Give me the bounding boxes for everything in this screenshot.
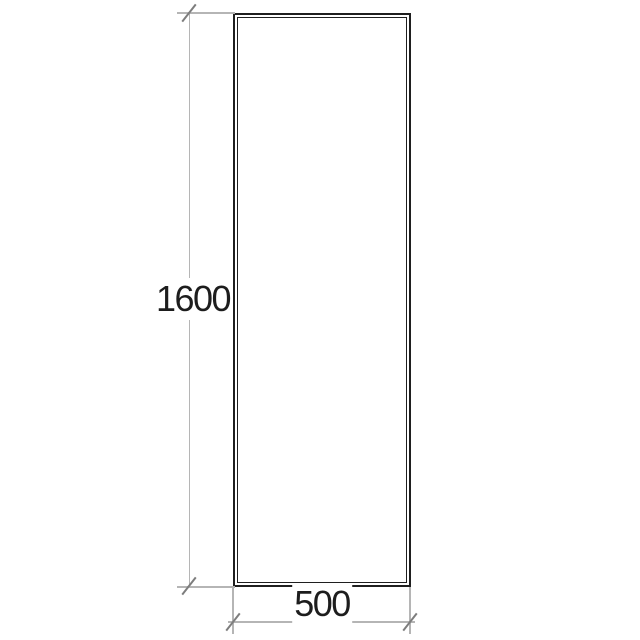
- height-dimension-label: 1600: [154, 278, 232, 320]
- width-dimension-label: 500: [292, 583, 352, 625]
- panel-inner-outline: [237, 17, 407, 583]
- width-extension-line-left: [232, 587, 234, 634]
- panel-outline: [233, 13, 411, 587]
- drawing-canvas: 1600 500: [0, 0, 640, 640]
- width-extension-line-right: [409, 587, 411, 634]
